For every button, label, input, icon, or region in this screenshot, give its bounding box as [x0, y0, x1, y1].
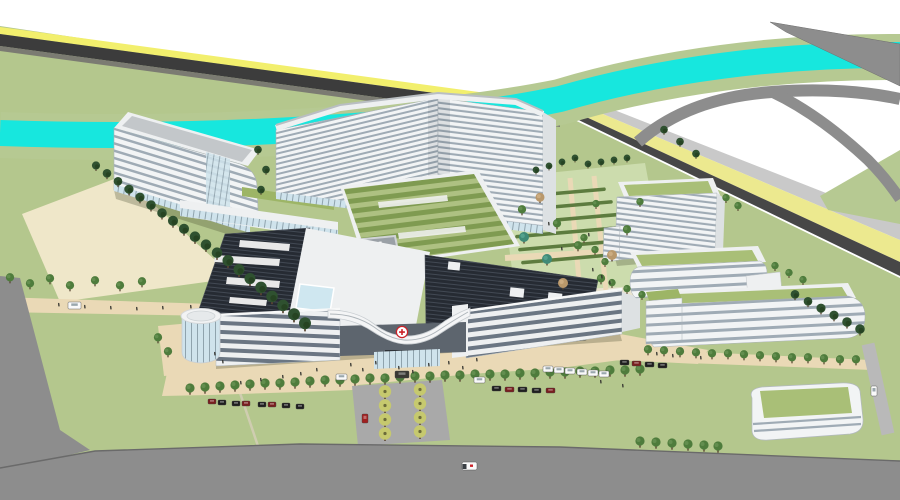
clinic-facade [646, 298, 682, 344]
parking-structure [751, 383, 863, 440]
parking-roof-green [760, 387, 852, 418]
skylight-blue [296, 284, 334, 312]
ambulance-marker [470, 465, 473, 467]
tower-side-face [543, 112, 556, 234]
ambulance [462, 462, 477, 470]
car [505, 387, 514, 392]
car [546, 388, 555, 393]
car [232, 401, 240, 406]
car [554, 367, 564, 373]
emblem-cross: ✚ [399, 328, 406, 337]
car [68, 302, 81, 309]
skylight-square-3 [448, 261, 461, 270]
car [336, 374, 347, 380]
car [518, 387, 527, 392]
car [296, 404, 304, 409]
car [268, 402, 276, 407]
car [218, 400, 226, 405]
car [492, 386, 501, 391]
car [543, 366, 553, 372]
car [474, 377, 485, 383]
skylight-square-1 [510, 287, 525, 297]
clinic-block [646, 289, 682, 344]
car [599, 371, 609, 377]
rotunda-roof [187, 311, 215, 321]
rendering-canvas: ✚ [0, 0, 900, 500]
car [208, 399, 216, 404]
car [645, 362, 654, 367]
red-cross-emblem: ✚ [396, 326, 407, 337]
car [565, 368, 575, 374]
car [532, 388, 541, 393]
car [242, 401, 250, 406]
car [258, 402, 266, 407]
car [588, 370, 598, 376]
front-facade-left [216, 310, 340, 366]
car [871, 386, 877, 396]
car [362, 414, 368, 423]
car [577, 369, 587, 375]
car [282, 403, 290, 408]
car [632, 361, 641, 366]
car [395, 371, 409, 378]
ambulance-cab [463, 464, 467, 469]
entrance-doors [374, 349, 440, 369]
car [620, 360, 629, 365]
car [658, 363, 667, 368]
grove-pavement [352, 380, 450, 446]
hospital-campus-rendering: Aerial 3D architectural rendering of a h… [0, 0, 900, 500]
